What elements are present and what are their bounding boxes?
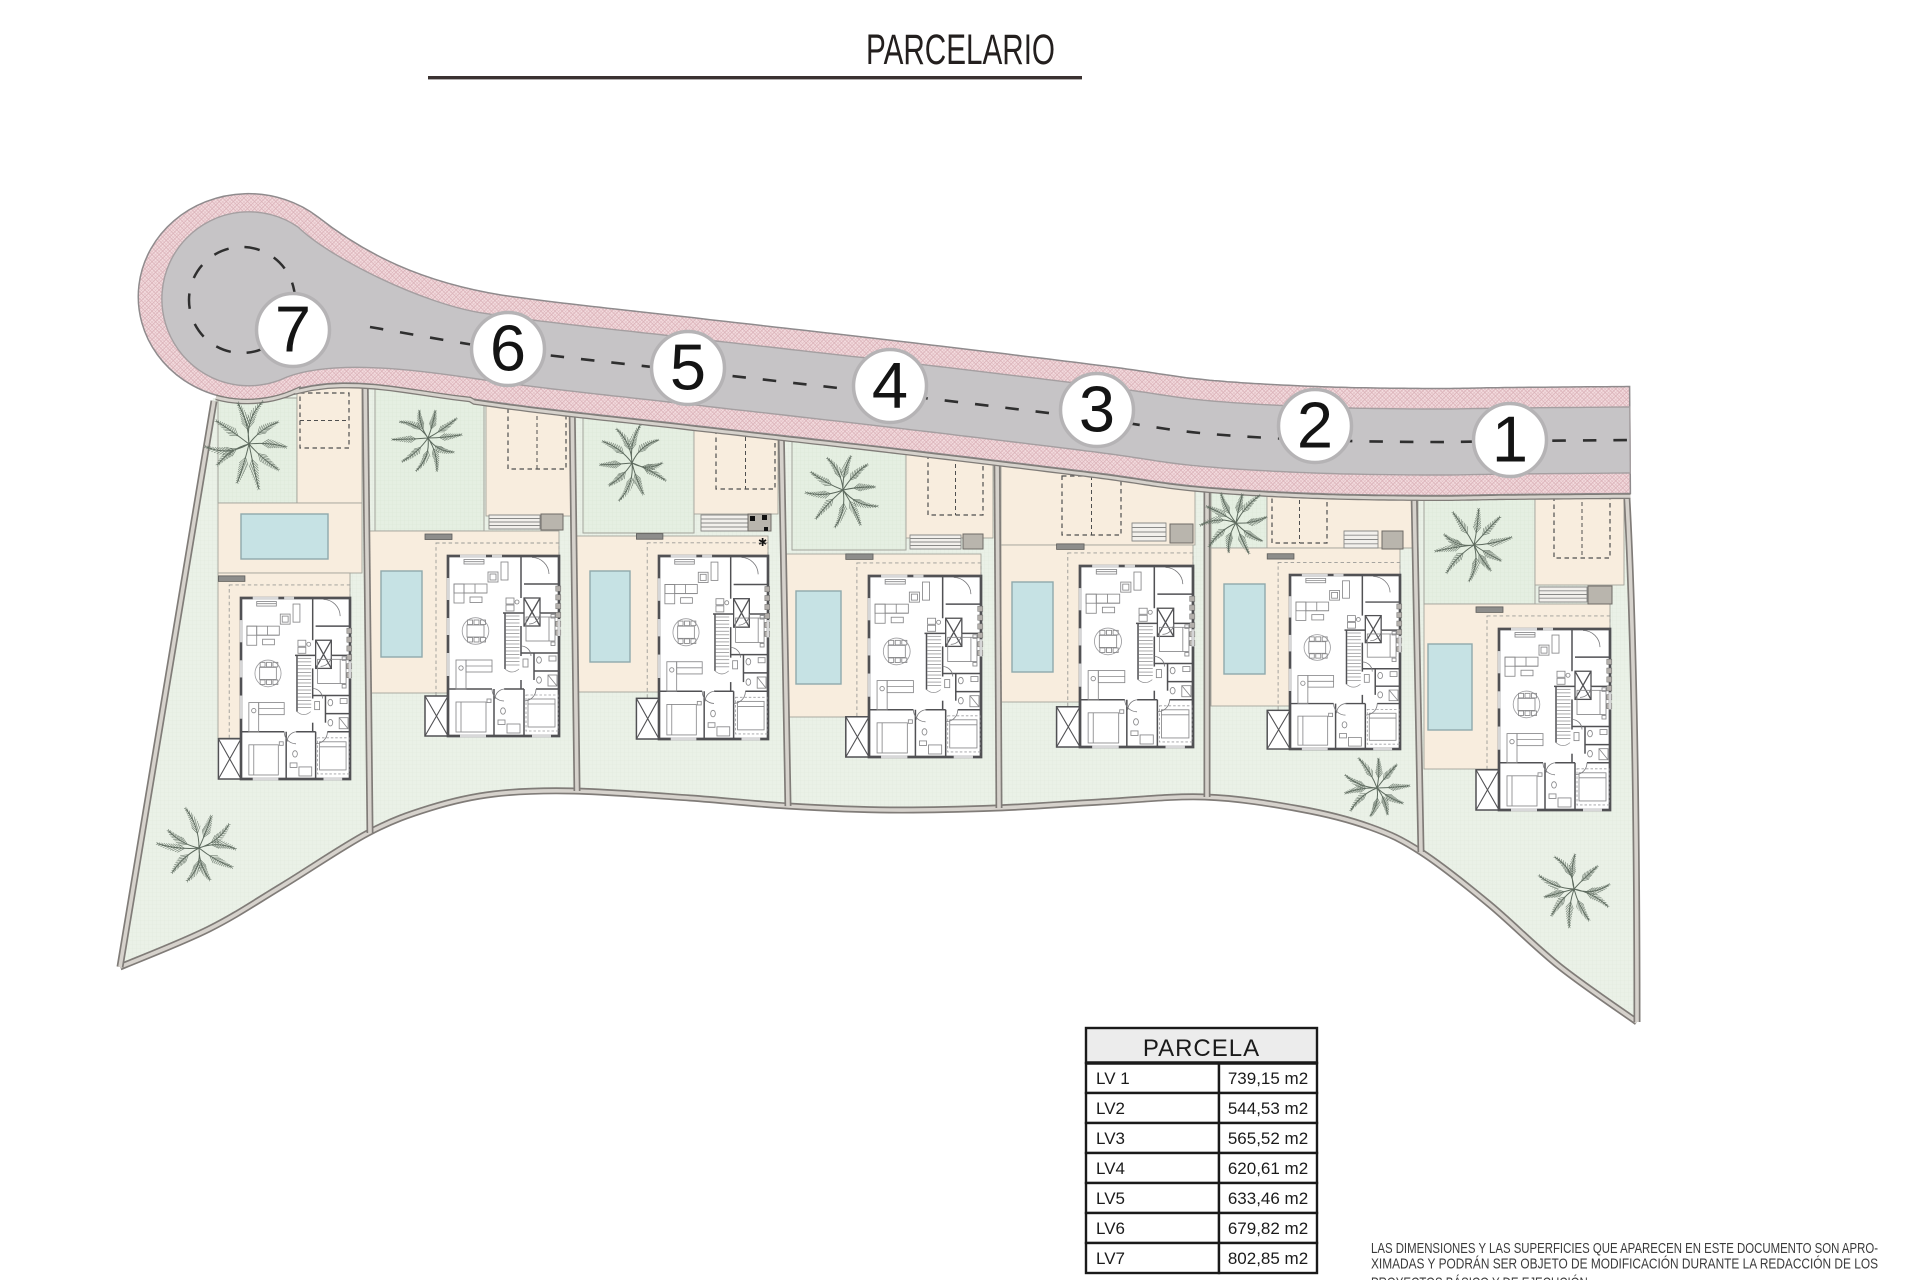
svg-text:5: 5 bbox=[670, 331, 706, 404]
svg-text:802,85 m2: 802,85 m2 bbox=[1228, 1249, 1308, 1268]
svg-text:PARCELARIO: PARCELARIO bbox=[866, 26, 1055, 74]
svg-text:LV6: LV6 bbox=[1096, 1219, 1125, 1238]
svg-text:LV4: LV4 bbox=[1096, 1159, 1125, 1178]
svg-text:3: 3 bbox=[1079, 373, 1115, 446]
svg-text:LV3: LV3 bbox=[1096, 1129, 1125, 1148]
svg-text:LAS DIMENSIONES Y LAS SUPERFIC: LAS DIMENSIONES Y LAS SUPERFICIES QUE AP… bbox=[1371, 1241, 1878, 1257]
svg-text:739,15 m2: 739,15 m2 bbox=[1228, 1069, 1308, 1088]
svg-text:PROYECTOS BÁSICO Y DE EJECUCIÓ: PROYECTOS BÁSICO Y DE EJECUCIÓN. bbox=[1371, 1275, 1591, 1281]
svg-text:633,46 m2: 633,46 m2 bbox=[1228, 1189, 1308, 1208]
svg-text:LV2: LV2 bbox=[1096, 1099, 1125, 1118]
svg-text:565,52 m2: 565,52 m2 bbox=[1228, 1129, 1308, 1148]
svg-text:2: 2 bbox=[1297, 389, 1333, 462]
svg-text:XIMADAS Y PODRÁN SER OBJETO DE: XIMADAS Y PODRÁN SER OBJETO DE MODIFICAC… bbox=[1371, 1256, 1878, 1273]
svg-text:679,82 m2: 679,82 m2 bbox=[1228, 1219, 1308, 1238]
svg-text:LV 1: LV 1 bbox=[1096, 1069, 1130, 1088]
svg-text:LV7: LV7 bbox=[1096, 1249, 1125, 1268]
svg-text:PARCELA: PARCELA bbox=[1143, 1035, 1260, 1062]
svg-text:7: 7 bbox=[275, 293, 311, 366]
svg-text:544,53 m2: 544,53 m2 bbox=[1228, 1099, 1308, 1118]
svg-text:1: 1 bbox=[1492, 403, 1528, 476]
svg-text:620,61 m2: 620,61 m2 bbox=[1228, 1159, 1308, 1178]
svg-text:4: 4 bbox=[872, 349, 908, 422]
svg-text:6: 6 bbox=[490, 312, 526, 385]
svg-text:LV5: LV5 bbox=[1096, 1189, 1125, 1208]
